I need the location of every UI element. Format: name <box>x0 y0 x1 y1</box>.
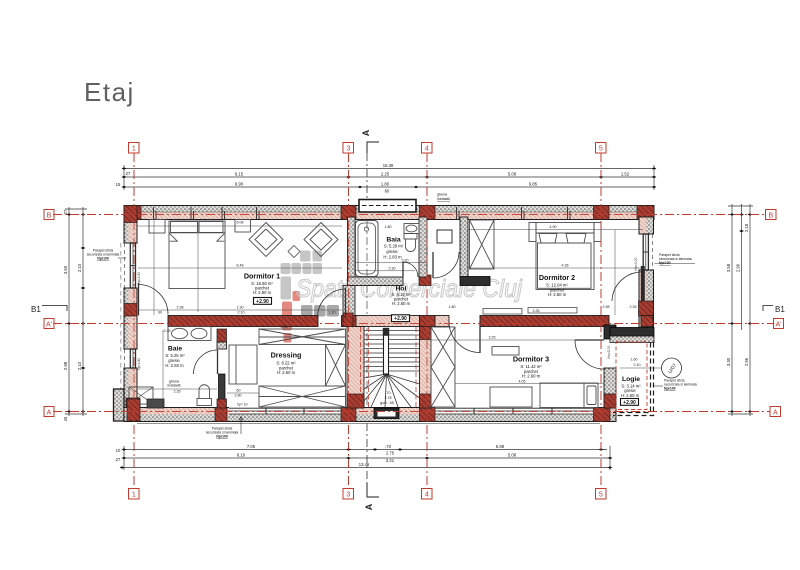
svg-text:Baia: Baia <box>386 237 401 244</box>
svg-text:1.80: 1.80 <box>381 182 390 187</box>
svg-text:2.18: 2.18 <box>744 223 749 232</box>
svg-text:1.80: 1.80 <box>449 305 456 309</box>
svg-text:instalatii: instalatii <box>437 197 450 201</box>
svg-text:hp=1.60: hp=1.60 <box>137 358 141 370</box>
svg-text:10: 10 <box>116 448 121 453</box>
svg-text:2.75: 2.75 <box>386 451 395 456</box>
svg-text:hp=1.50: hp=1.50 <box>137 272 141 284</box>
svg-text:Logie: Logie <box>622 376 640 383</box>
svg-text:H: 2.60 m: H: 2.60 m <box>165 363 184 368</box>
svg-text:6.08: 6.08 <box>237 221 244 225</box>
svg-text:7.05: 7.05 <box>247 444 256 449</box>
svg-text:2.25: 2.25 <box>381 172 390 177</box>
svg-text:2.98: 2.98 <box>63 361 68 370</box>
svg-text:Hu=2.00: Hu=2.00 <box>607 345 611 358</box>
svg-text:gol= -55: gol= -55 <box>380 401 394 405</box>
svg-text:1: 1 <box>132 492 136 499</box>
svg-text:15: 15 <box>116 182 121 187</box>
svg-text:H: 2.60 m: H: 2.60 m <box>621 393 640 398</box>
svg-text:A: A <box>364 503 374 510</box>
svg-text:5.98: 5.98 <box>496 444 505 449</box>
svg-text:2.98: 2.98 <box>603 305 610 309</box>
svg-text:ghena: ghena <box>437 193 447 197</box>
svg-text:4.05: 4.05 <box>519 380 526 384</box>
svg-text:4: 4 <box>425 146 429 153</box>
svg-text:Npr100: Npr100 <box>664 387 676 391</box>
svg-text:Dormitor 2: Dormitor 2 <box>539 273 575 282</box>
svg-text:6.15: 6.15 <box>235 172 244 177</box>
svg-text:Dressing: Dressing <box>271 351 302 360</box>
svg-text:3.58: 3.58 <box>726 263 731 272</box>
svg-text:H: 2.60 m: H: 2.60 m <box>392 301 411 306</box>
svg-text:Npr100: Npr100 <box>216 435 228 439</box>
svg-text:90: 90 <box>158 311 162 315</box>
svg-text:6.85: 6.85 <box>529 182 538 187</box>
svg-text:3.30: 3.30 <box>726 357 731 366</box>
svg-text:1.52: 1.52 <box>621 172 630 177</box>
svg-text:4: 4 <box>425 492 429 499</box>
svg-text:B1: B1 <box>775 305 785 314</box>
svg-text:1.80: 1.80 <box>385 225 392 229</box>
svg-text:27: 27 <box>116 457 121 462</box>
svg-text:A': A' <box>775 322 781 329</box>
svg-text:S: 5.29 m²: S: 5.29 m² <box>384 244 404 249</box>
svg-text:5: 5 <box>599 492 603 499</box>
svg-text:6.10: 6.10 <box>237 453 246 458</box>
svg-text:Hp=0.00: Hp=0.00 <box>634 257 638 270</box>
svg-text:Etaj: Etaj <box>84 77 135 107</box>
svg-text:Dormitor 3: Dormitor 3 <box>513 355 549 364</box>
svg-text:A': A' <box>46 322 52 329</box>
svg-text:2.10: 2.10 <box>238 311 245 315</box>
svg-text:2.25: 2.25 <box>164 329 171 333</box>
svg-text:A: A <box>361 129 371 136</box>
svg-text:2.10: 2.10 <box>77 263 82 272</box>
svg-text:+2.90: +2.90 <box>623 400 636 406</box>
svg-text:3.50: 3.50 <box>63 265 68 274</box>
svg-text:2.80: 2.80 <box>235 394 242 398</box>
svg-text:4.90: 4.90 <box>550 225 557 229</box>
svg-text:instalatii: instalatii <box>168 384 181 388</box>
svg-text:2.96: 2.96 <box>736 263 741 272</box>
svg-text:2.10: 2.10 <box>634 363 641 367</box>
svg-text:1.60: 1.60 <box>631 358 638 362</box>
svg-text:2.98: 2.98 <box>177 306 184 310</box>
svg-text:60: 60 <box>385 189 390 194</box>
svg-text:.70: .70 <box>385 444 391 449</box>
svg-text:3.35: 3.35 <box>533 309 540 313</box>
svg-text:+2.90: +2.90 <box>256 299 269 305</box>
svg-text:15.30: 15.30 <box>383 163 394 168</box>
svg-text:6.90: 6.90 <box>235 182 244 187</box>
svg-text:Dormitor 1: Dormitor 1 <box>244 272 280 281</box>
svg-text:3: 3 <box>346 146 350 153</box>
svg-text:4.36: 4.36 <box>562 264 569 268</box>
svg-text:Baie: Baie <box>168 346 183 353</box>
svg-text:H: 2.60 m: H: 2.60 m <box>548 292 567 297</box>
svg-text:A: A <box>47 410 52 417</box>
svg-text:H: 2.80 m: H: 2.80 m <box>253 290 272 295</box>
svg-text:Npr100: Npr100 <box>659 261 671 265</box>
svg-text:B: B <box>47 213 52 220</box>
svg-text:.60: .60 <box>236 389 241 393</box>
svg-text:45: 45 <box>63 416 68 421</box>
svg-text:hp= 10: hp= 10 <box>237 403 248 407</box>
svg-text:5.08: 5.08 <box>508 172 517 177</box>
svg-text:2.98: 2.98 <box>281 325 288 329</box>
svg-text:2.35: 2.35 <box>630 305 637 309</box>
svg-text:H: 2.83 m: H: 2.83 m <box>383 255 402 260</box>
svg-text:13.46: 13.46 <box>359 462 370 467</box>
svg-text:27: 27 <box>63 209 68 214</box>
svg-text:+2.90: +2.90 <box>394 316 407 322</box>
svg-text:B: B <box>768 213 773 220</box>
svg-text:A: A <box>773 410 778 417</box>
svg-text:1: 1 <box>132 146 136 153</box>
svg-text:Npr100: Npr100 <box>97 257 109 261</box>
svg-text:H: 2.60 m: H: 2.60 m <box>522 374 541 379</box>
svg-text:5.08: 5.08 <box>508 453 517 458</box>
svg-text:2.96: 2.96 <box>744 357 749 366</box>
svg-text:27: 27 <box>126 171 131 176</box>
svg-text:2.78: 2.78 <box>385 396 392 400</box>
svg-text:2.35: 2.35 <box>174 390 181 394</box>
svg-text:1.90: 1.90 <box>237 306 244 310</box>
svg-text:3.25: 3.25 <box>489 336 496 340</box>
svg-text:3: 3 <box>346 492 350 499</box>
svg-text:H: 2.60 m: H: 2.60 m <box>277 370 296 375</box>
svg-text:gresie: gresie <box>386 249 398 254</box>
svg-text:6.48: 6.48 <box>237 264 244 268</box>
svg-text:2.30: 2.30 <box>389 267 396 271</box>
svg-text:1.20: 1.20 <box>329 311 336 315</box>
svg-text:3.21: 3.21 <box>386 458 395 463</box>
svg-text:.70: .70 <box>386 391 391 395</box>
svg-text:5: 5 <box>599 146 603 153</box>
svg-text:2.10: 2.10 <box>77 361 82 370</box>
svg-text:B1: B1 <box>31 305 41 314</box>
